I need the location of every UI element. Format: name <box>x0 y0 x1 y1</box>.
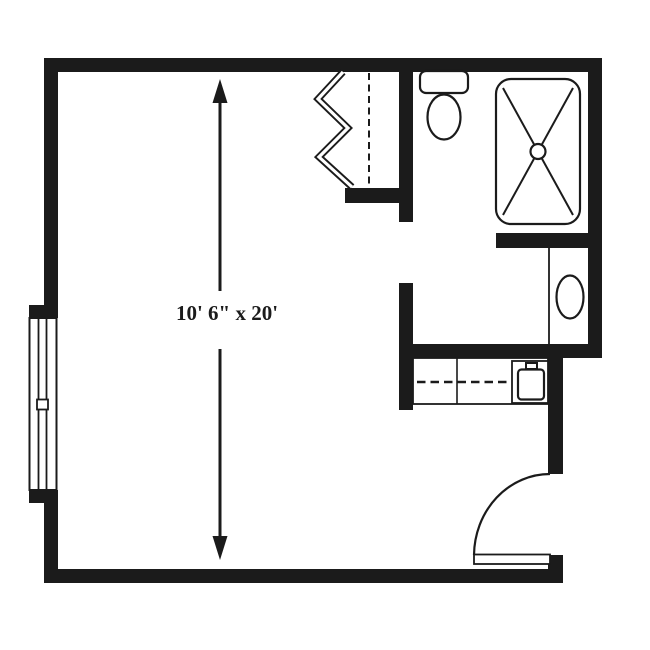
vanity-nook-bottom-wall <box>399 344 602 358</box>
kitchenette <box>413 358 548 404</box>
right-wall <box>588 58 602 358</box>
dimension-label: 10' 6" x 20' <box>176 301 278 325</box>
sink-basin <box>518 370 544 400</box>
closet-bottom-wall <box>345 188 412 203</box>
entry-door-leaf <box>474 555 550 565</box>
dimension-arrowhead-top <box>213 79 228 103</box>
kitchen-right-wall <box>548 358 563 474</box>
bathroom <box>420 71 580 224</box>
vanity-sink-icon <box>557 276 584 319</box>
bottom-wall <box>44 569 563 583</box>
dimension-arrowhead-bottom <box>213 536 228 560</box>
entry <box>474 474 550 564</box>
entry-door-swing-icon <box>474 474 550 555</box>
vanity-nook <box>549 248 584 344</box>
shower-drain <box>531 144 546 159</box>
floor-plan: 10' 6" x 20' <box>0 0 650 650</box>
floor-plan-drawing: 10' 6" x 20' <box>0 0 650 650</box>
sink-faucet <box>526 363 537 369</box>
dimension-arrow: 10' 6" x 20' <box>176 79 278 560</box>
toilet-icon <box>428 95 461 140</box>
top-wall <box>44 58 602 72</box>
window-cap-bottom <box>29 490 58 503</box>
window-icon <box>30 318 57 490</box>
closet <box>318 72 369 187</box>
window-cap-top <box>29 305 58 318</box>
toilet-tank <box>420 71 468 93</box>
left-wall-upper <box>44 58 58 305</box>
shower-vanity-divider-wall <box>496 233 602 248</box>
window-meeting-rail <box>37 400 48 410</box>
